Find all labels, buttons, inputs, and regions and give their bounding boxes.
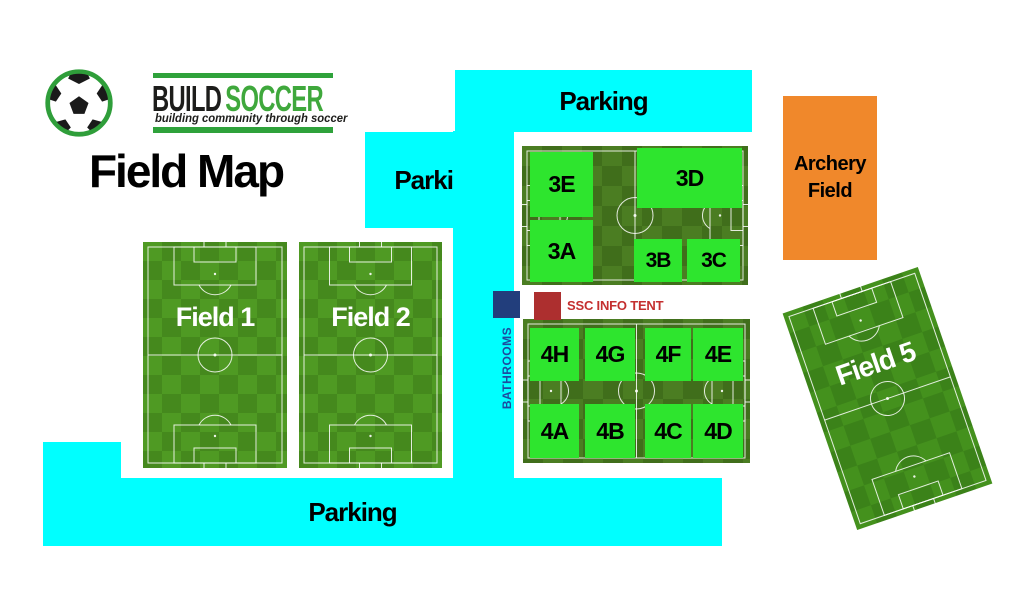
archery-label-line2: Field [808,178,852,205]
field-1-label: Field 1 [143,302,287,333]
parking-label-top: Parking [559,86,647,117]
bathrooms-label: BATHROOMS [500,308,514,428]
parking-label-bottom: Parking [308,497,396,528]
parking-area-bottom: Parking [43,478,722,546]
archery-label-line1: Archery [794,151,866,178]
field-3c: 3C [687,239,740,282]
archery-field: Archery Field [783,96,877,260]
info-tent-label: SSC INFO TENT [567,298,663,313]
info-tent-marker [534,292,561,320]
logo-bottom-bar [153,127,333,133]
page-title: Field Map [26,144,346,198]
field-3b: 3B [634,239,682,282]
soccer-field-map: BUILDSOCCER building community through s… [0,0,1024,605]
field-3a: 3A [530,220,593,282]
brand-tagline: building community through soccer [155,111,347,125]
field-3d: 3D [637,148,742,208]
field-5: Field 5 [783,267,993,530]
field-2: Field 2 [299,242,442,468]
field-4-complex: 4H 4G 4F 4E 4A 4B 4C 4D [523,319,750,463]
parking-area-top: Parking [455,70,752,132]
field-4c: 4C [645,404,691,458]
soccer-ball-logo-icon [45,69,113,137]
field-4d: 4D [693,404,743,458]
field-4e: 4E [693,328,743,381]
field-3e: 3E [530,152,593,217]
field-4h: 4H [530,328,579,381]
field-4f: 4F [645,328,691,381]
field-2-label: Field 2 [299,302,442,333]
field-1: Field 1 [143,242,287,468]
field-3-complex: 3E 3D 3A 3B 3C [522,146,748,285]
field-4b: 4B [585,404,635,458]
field-4a: 4A [530,404,579,458]
field-4g: 4G [585,328,635,381]
